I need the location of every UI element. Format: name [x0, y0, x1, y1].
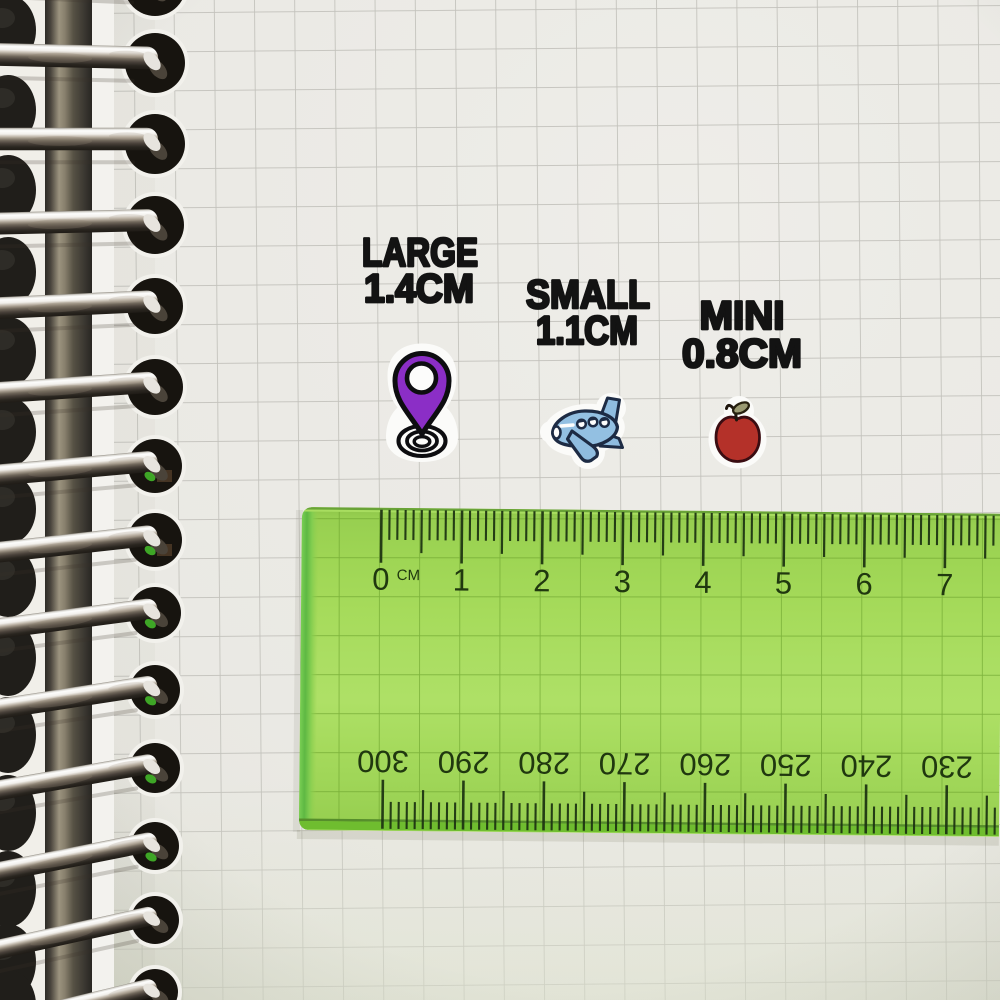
- svg-text:6: 6: [855, 566, 873, 601]
- svg-text:280: 280: [518, 745, 570, 780]
- svg-text:7: 7: [936, 567, 954, 602]
- svg-text:300: 300: [357, 744, 409, 779]
- svg-text:CM: CM: [397, 567, 420, 584]
- svg-text:240: 240: [840, 748, 892, 783]
- svg-text:270: 270: [599, 746, 651, 781]
- svg-text:230: 230: [921, 749, 973, 784]
- svg-text:290: 290: [438, 744, 490, 779]
- svg-text:5: 5: [775, 566, 793, 601]
- svg-text:1.1CM: 1.1CM: [536, 309, 638, 353]
- svg-text:0.8CM: 0.8CM: [682, 332, 802, 376]
- svg-text:260: 260: [679, 747, 731, 782]
- svg-text:1.4CM: 1.4CM: [364, 267, 474, 311]
- svg-text:2: 2: [533, 563, 551, 598]
- svg-text:1: 1: [453, 562, 471, 597]
- svg-text:4: 4: [694, 565, 712, 600]
- svg-text:0: 0: [372, 562, 390, 597]
- svg-text:250: 250: [760, 747, 812, 782]
- svg-text:3: 3: [614, 564, 632, 599]
